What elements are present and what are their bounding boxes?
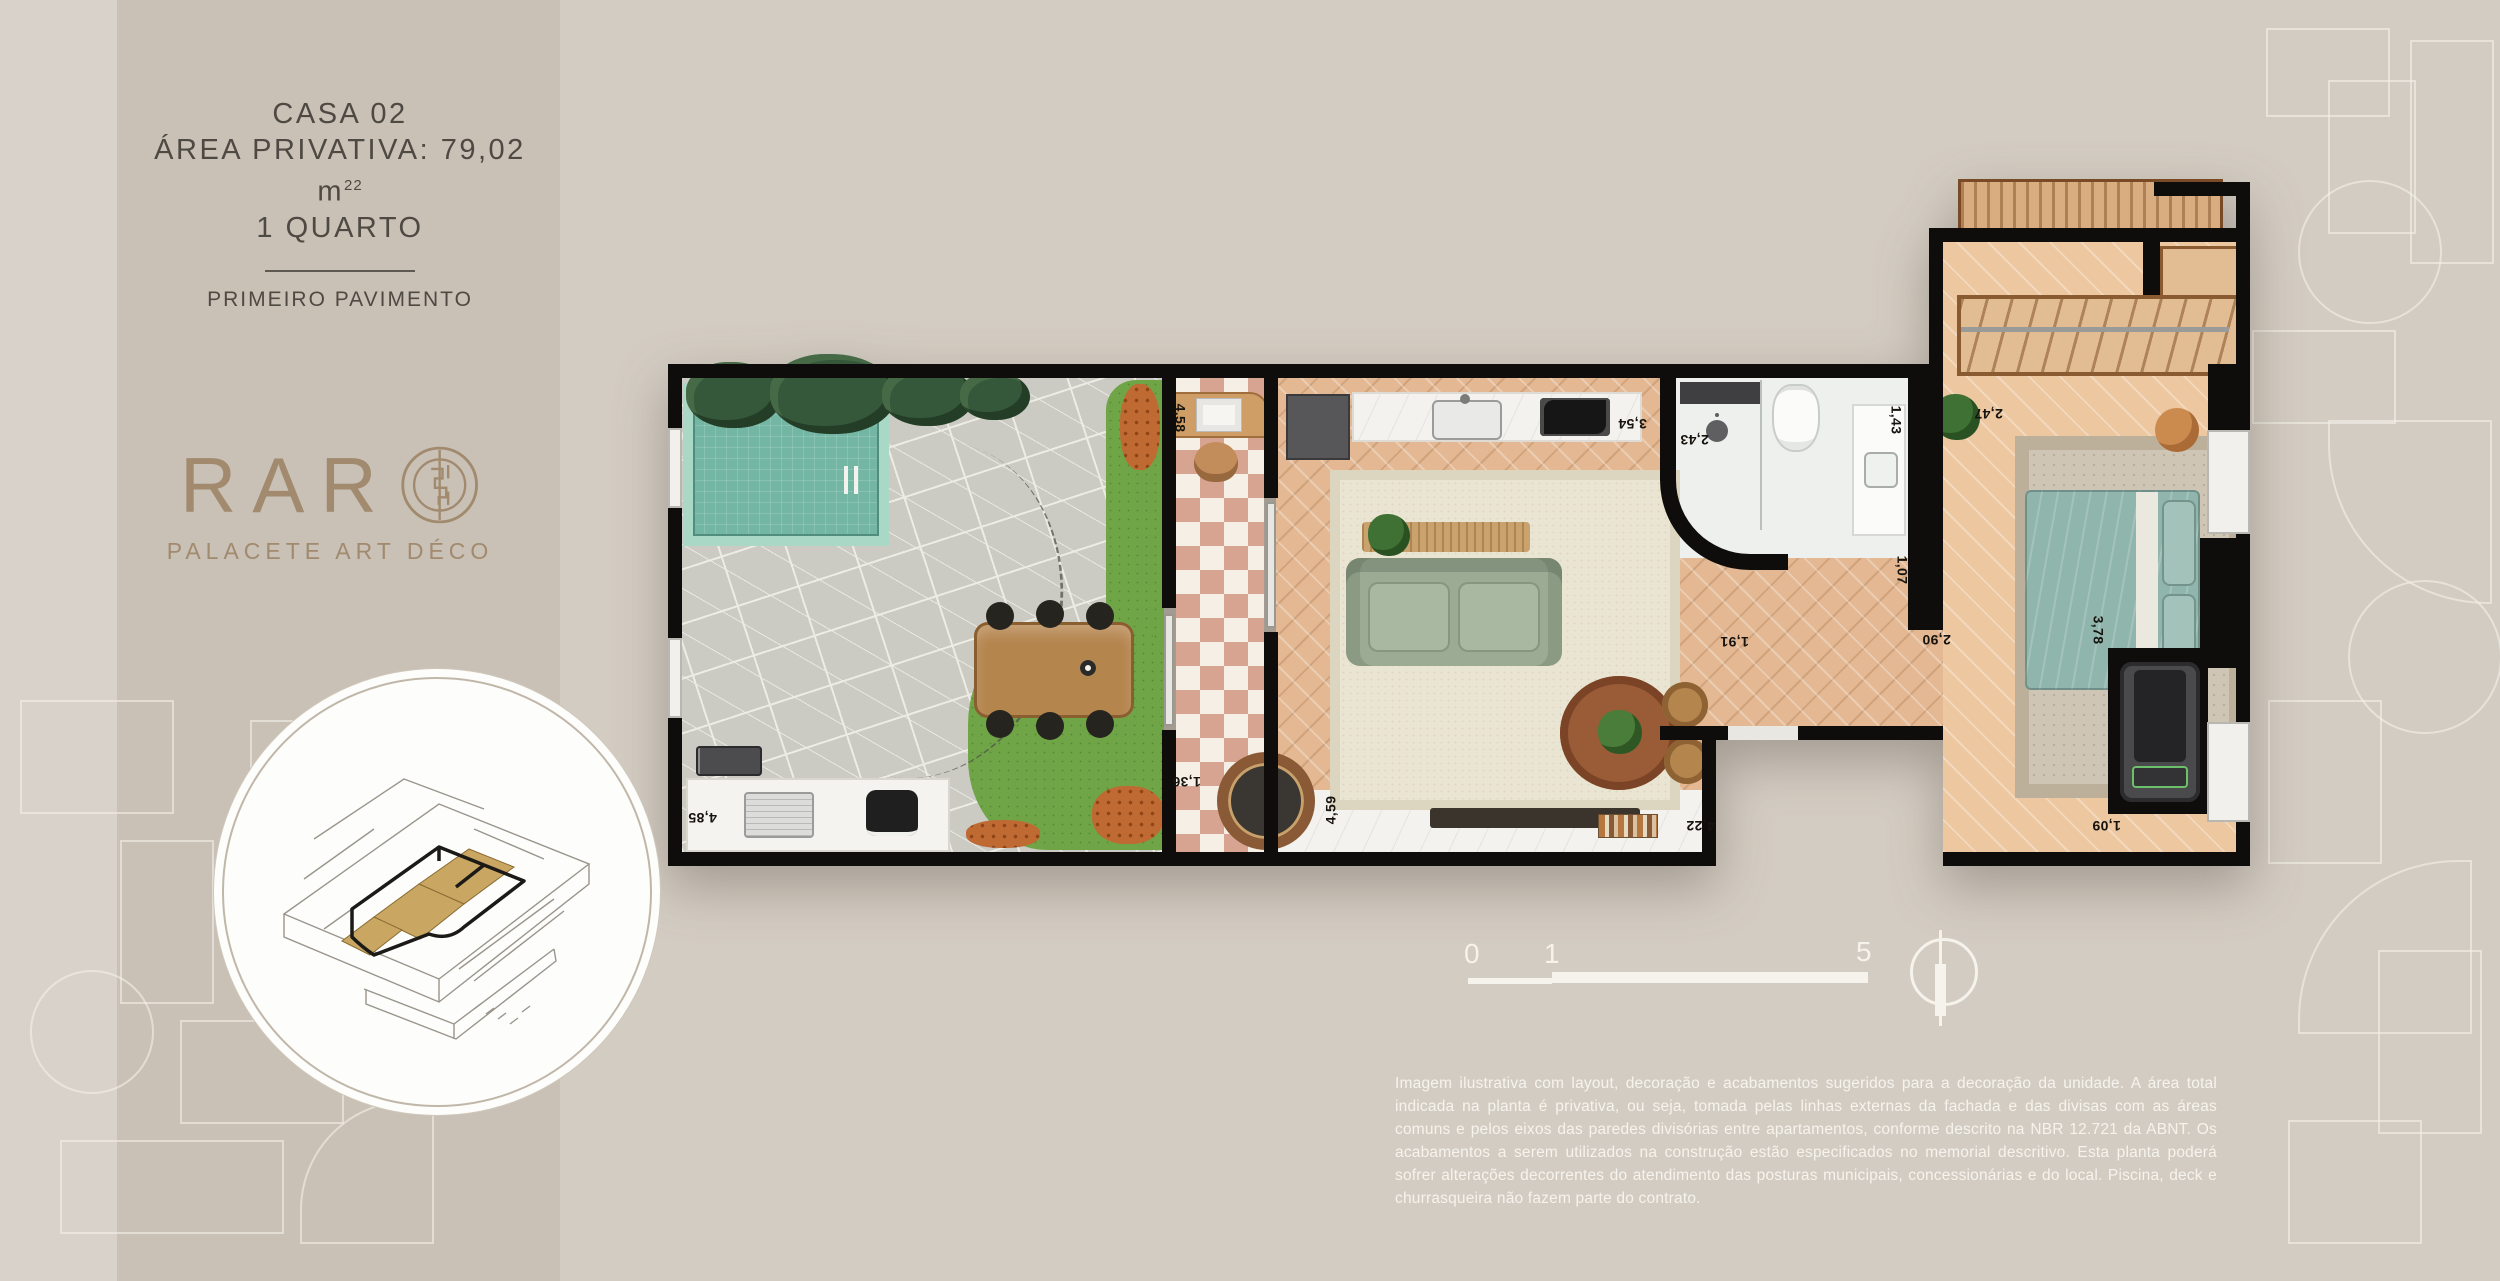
- scale-label-1: 1: [1544, 938, 1561, 970]
- garden-dining-table: [974, 622, 1134, 718]
- treadmill-console: [2132, 766, 2188, 788]
- wall: [1943, 228, 2250, 242]
- floor-level-label: PRIMEIRO PAVIMENTO: [130, 288, 550, 312]
- private-area-line: ÁREA PRIVATIVA: 79,02 m22: [130, 132, 550, 210]
- shower-niche: [1680, 382, 1760, 404]
- cooktop: [1540, 398, 1610, 436]
- raro-emblem-icon: [399, 442, 480, 528]
- flower-bed: [966, 820, 1040, 848]
- counter-sink: [744, 792, 814, 838]
- wall: [668, 364, 1943, 378]
- wall: [668, 852, 1716, 866]
- art-deco-shape: [2288, 1120, 2422, 1244]
- sliding-door: [1266, 502, 1276, 628]
- dimension-label: 4,22: [1686, 818, 1715, 834]
- isometric-building-drawing: [224, 679, 650, 1105]
- dimension-label: 4,59: [1322, 796, 1338, 825]
- wall: [1660, 378, 1676, 458]
- unit-title: CASA 02: [130, 96, 550, 132]
- laptop-icon: [1196, 398, 1242, 432]
- dimension-label: 4,85: [688, 810, 717, 826]
- grill-icon: [866, 790, 918, 836]
- wall: [1162, 730, 1176, 852]
- scale-segment-short: [1468, 978, 1552, 984]
- tree-canopy: [960, 372, 1030, 420]
- logo-subtitle: PALACETE ART DÉCO: [150, 538, 510, 565]
- wall: [1264, 378, 1278, 498]
- art-deco-shape: [120, 840, 214, 1004]
- dimension-label: 1,91: [1720, 634, 1749, 650]
- dimension-label: 3,78: [2090, 616, 2106, 645]
- garden-chair: [986, 710, 1014, 738]
- bedroom-count-label: 1 QUARTO: [130, 210, 550, 246]
- brand-logo: RAR: [180, 440, 480, 530]
- flower-bed: [1120, 384, 1160, 470]
- dimension-label: 1,43: [1888, 406, 1904, 435]
- garden-chair: [1036, 600, 1064, 628]
- scale-label-0: 0: [1464, 938, 1481, 970]
- washing-machine: [696, 746, 762, 776]
- private-area-label: ÁREA PRIVATIVA: 79,02 m: [154, 134, 526, 208]
- art-deco-shape: [2378, 950, 2482, 1134]
- logo-wordmark: RAR: [180, 446, 393, 524]
- wardrobe-rail: [1961, 327, 2229, 332]
- dimension-label: 3,54: [1618, 416, 1647, 432]
- vanity-sink: [1864, 452, 1898, 488]
- window: [668, 638, 682, 718]
- wall: [2200, 538, 2236, 668]
- bedroom-shelf-box: [2160, 246, 2242, 298]
- hall-door-threshold: [1728, 726, 1798, 740]
- area-superscript: 22: [344, 177, 363, 194]
- scale-label-5: 5: [1856, 936, 1873, 968]
- wall: [1702, 740, 1716, 866]
- art-deco-shape: [60, 1140, 284, 1234]
- plant-icon: [1368, 514, 1410, 556]
- floor-plan: 4,58 3,54 2,43 1,43 1,07 1,91 2,90 3,78 …: [668, 170, 2408, 880]
- window: [668, 428, 682, 508]
- dimension-label: 2,47: [1974, 406, 2003, 422]
- wall: [1929, 228, 1943, 378]
- isometric-inset: [222, 677, 652, 1107]
- wall: [2208, 364, 2236, 436]
- window: [2207, 430, 2250, 534]
- sliding-door: [1164, 614, 1174, 726]
- scale-bar: 0 1 5: [1450, 920, 2070, 1030]
- faucet-icon: [1460, 394, 1470, 404]
- wall: [1660, 726, 1943, 740]
- dimension-label: 2,90: [1922, 632, 1951, 648]
- dimension-label: 4,58: [1172, 404, 1188, 433]
- table-plate: [1080, 660, 1096, 676]
- wardrobe: [1957, 295, 2241, 376]
- dimension-label: 1,36: [1172, 774, 1201, 790]
- dimension-label: 2,43: [1680, 432, 1709, 448]
- garden-chair: [1086, 710, 1114, 738]
- scale-segment-long: [1552, 972, 1868, 983]
- wall: [2143, 228, 2160, 295]
- flower-bed: [1092, 786, 1164, 844]
- bookshelf-books: [1598, 814, 1658, 838]
- wall: [1264, 632, 1278, 852]
- wall: [1908, 364, 1943, 630]
- rattan-chair: [1662, 682, 1708, 728]
- sofa-cushion: [1458, 582, 1540, 652]
- bed-pillow: [2162, 500, 2196, 586]
- page: CASA 02 ÁREA PRIVATIVA: 79,02 m22 1 QUAR…: [0, 0, 2500, 1281]
- north-arrow-icon: [1886, 930, 1996, 1030]
- title-block: CASA 02 ÁREA PRIVATIVA: 79,02 m22 1 QUAR…: [130, 96, 550, 312]
- dimension-label: 1,09: [2092, 818, 2121, 834]
- art-deco-shape: [20, 700, 174, 814]
- fridge: [1286, 394, 1350, 460]
- garden-chair: [1036, 712, 1064, 740]
- plant-icon: [1598, 710, 1642, 754]
- pouf-stool: [2155, 408, 2199, 452]
- title-divider: [265, 270, 415, 272]
- garden-chair: [986, 602, 1014, 630]
- art-deco-shape: [30, 970, 154, 1094]
- treadmill-belt: [2134, 670, 2186, 762]
- garden-chair: [1086, 602, 1114, 630]
- wall: [1943, 852, 2250, 866]
- entry-chair: [1194, 442, 1238, 482]
- kitchen-sink: [1432, 400, 1502, 440]
- window: [2207, 722, 2250, 822]
- sofa-cushion: [1368, 582, 1450, 652]
- dimension-label: 1,07: [1894, 556, 1910, 585]
- legal-disclaimer: Imagem ilustrativa com layout, decoração…: [1395, 1072, 2217, 1210]
